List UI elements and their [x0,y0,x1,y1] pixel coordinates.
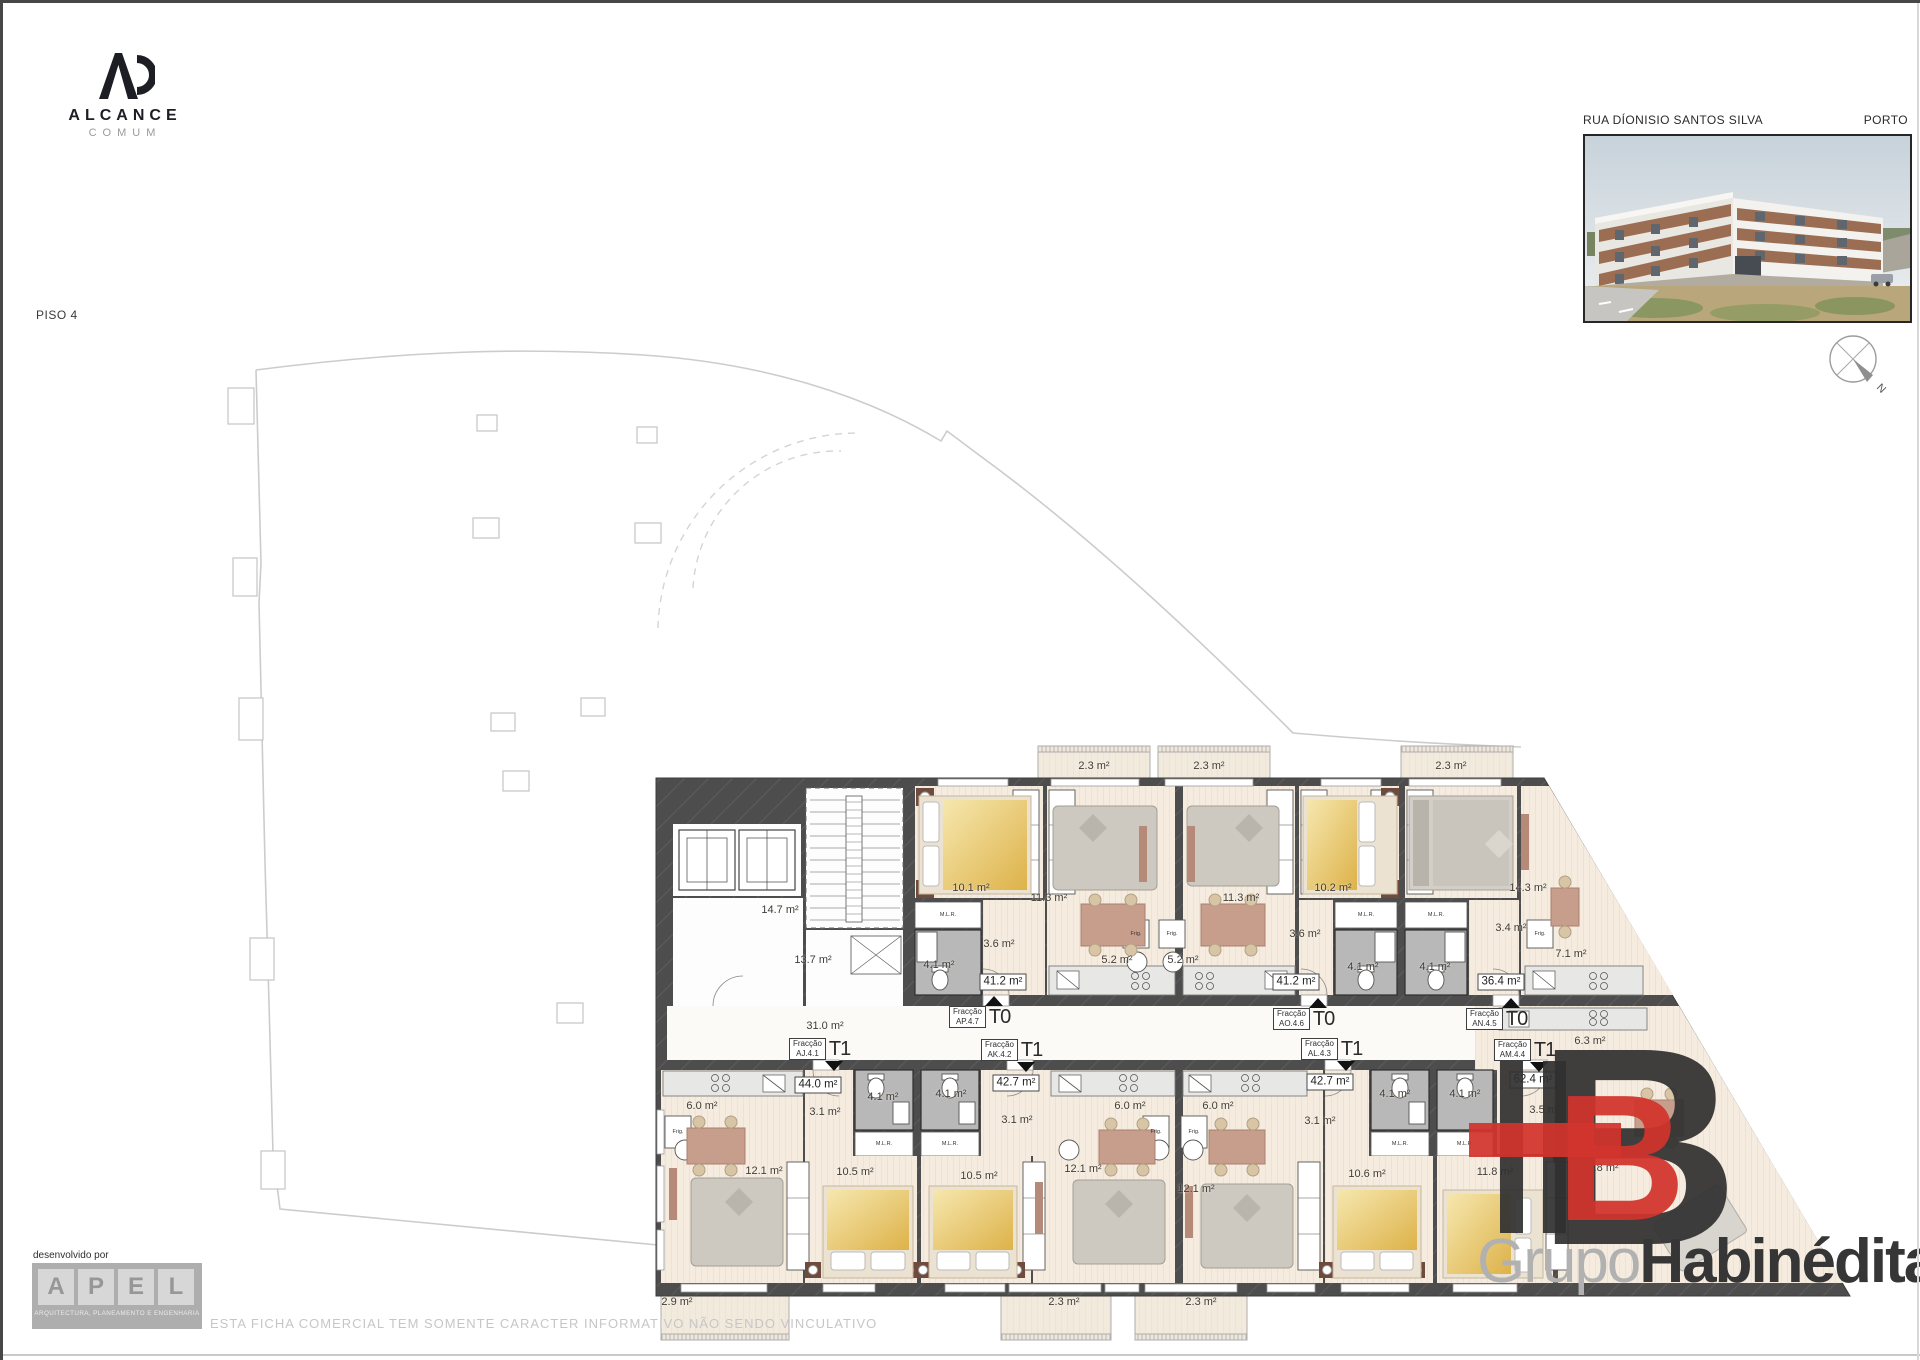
fraction-tag-AP.4.7: FracçãoAP.4.7T0 [949,1006,1010,1028]
entrance-arrow-icon [985,996,1003,1006]
fixture-label: M.L.R. [1457,1141,1473,1147]
area-label: 4.1 m² [923,959,954,971]
fraction-type: T1 [1341,1038,1362,1060]
alcance-logo: ALCANCE COMUM [45,49,205,139]
area-label: 2.3 m² [1435,760,1466,772]
disclaimer-text: ESTA FICHA COMERCIAL TEM SOMENTE CARACTE… [210,1316,877,1331]
area-label: 6.0 m² [1202,1100,1233,1112]
area-label: 2.3 m² [1193,760,1224,772]
adel-caption: ARQUITECTURA, PLANEAMENTO E ENGENHARIA [32,1310,202,1317]
alcance-name: ALCANCE [45,107,205,125]
fraction-code: FracçãoAO.4.6 [1273,1008,1310,1030]
area-label: 10.2 m² [1314,882,1351,894]
adel-letter: A [38,1269,74,1305]
entrance-arrow-icon [1530,1062,1548,1072]
fixture-label: Frig. [1151,1129,1162,1135]
entrance-arrow-icon [1017,1062,1035,1072]
area-label: 25.8 m² [1581,1162,1618,1174]
fixture-label: Frig. [1131,931,1142,937]
fixture-label: Frig. [1189,1129,1200,1135]
area-label: 5.2 m² [1167,954,1198,966]
fixture-label: M.L.R. [942,1141,958,1147]
adel-letter-tiles: A P E L [32,1263,202,1305]
fixture-label: M.L.R. [1392,1141,1408,1147]
area-label: 4.1 m² [1379,1088,1410,1100]
developed-by-label: desenvolvido por [33,1250,109,1261]
area-label: 5.2 m² [1101,954,1132,966]
right-edge-line [1917,3,1919,1360]
area-label: 6.0 m² [1114,1100,1145,1112]
fraction-type: T0 [989,1006,1010,1028]
fraction-tag-AO.4.6: FracçãoAO.4.6T0 [1273,1008,1334,1030]
entrance-arrow-icon [1502,998,1520,1008]
fraction-tag-AM.4.4: FracçãoAM.4.4T1 [1494,1039,1555,1061]
area-label: 4.1 m² [1419,961,1450,973]
fixture-label: Frig. [673,1129,684,1135]
fixture-label: M.L.R. [940,912,956,918]
area-label: 10.1 m² [952,882,989,894]
area-label: 3.1 m² [1304,1115,1335,1127]
area-label: 3.1 m² [809,1106,840,1118]
area-label: 4.1 m² [1347,961,1378,973]
area-label: 4.1 m² [1449,1088,1480,1100]
area-label: 3.5 m² [1529,1104,1560,1116]
area-label: 2.3 m² [1185,1296,1216,1308]
area-label: 12.1 m² [1064,1163,1101,1175]
fraction-code: FracçãoAM.4.4 [1494,1039,1531,1061]
fixture-label: Frig. [1167,931,1178,937]
bottom-edge-line [3,1354,1920,1356]
area-label: 41.2 m² [980,974,1027,991]
area-label: 3.6 m² [1289,928,1320,940]
commercial-sheet: N [0,0,1920,1360]
area-label: 6.3 m² [1574,1035,1605,1047]
area-label: 14.3 m² [1509,882,1546,894]
floor-label: PISO 4 [36,308,78,322]
fraction-tag-AK.4.2: FracçãoAK.4.2T1 [981,1039,1042,1061]
fraction-tag-AN.4.5: FracçãoAN.4.5T0 [1466,1008,1527,1030]
area-label: 31.0 m² [806,1020,843,1032]
fraction-code: FracçãoAN.4.5 [1466,1008,1503,1030]
adel-letter: L [158,1269,194,1305]
building-photo [1583,134,1912,323]
entrance-arrow-icon [1309,998,1327,1008]
area-label: 12.1 m² [745,1165,782,1177]
area-label: 4.1 m² [867,1091,898,1103]
area-label: 13.7 m² [794,954,831,966]
area-label: 10.5 m² [960,1170,997,1182]
area-label: 3.4 m² [1495,922,1526,934]
fixture-label: M.L.R. [1358,912,1374,918]
area-label: 4.1 m² [935,1088,966,1100]
area-label: 7.1 m² [1555,948,1586,960]
fixture-label: Frig. [1535,931,1546,937]
fraction-tag-AL.4.3: FracçãoAL.4.3T1 [1301,1038,1362,1060]
alcance-monogram-icon [95,49,155,101]
city-label: PORTO [1864,113,1908,127]
fixture-label: M.L.R. [876,1141,892,1147]
fraction-code: FracçãoAL.4.3 [1301,1038,1338,1060]
area-label: 2.3 m² [1078,760,1109,772]
area-label: 3.6 m² [983,938,1014,950]
fixture-label: M.L.R. [1428,912,1444,918]
area-label: 41.2 m² [1273,974,1320,991]
area-label: 11.3 m² [1031,892,1067,904]
area-label: 3.1 m² [1001,1114,1032,1126]
area-label: 11.8 m² [1477,1166,1513,1178]
area-label: 11.3 m² [1223,892,1259,904]
street-label: RUA DÍONISIO SANTOS SILVA [1583,113,1763,127]
fraction-type: T0 [1313,1008,1334,1030]
area-label: 36.4 m² [1478,974,1525,991]
fraction-type: T1 [829,1038,850,1060]
fraction-tag-AJ.4.1: FracçãoAJ.4.1T1 [789,1038,850,1060]
fraction-type: T1 [1021,1039,1042,1061]
area-label: 44.0 m² [795,1077,842,1094]
alcance-subtitle: COMUM [45,127,205,139]
area-label: 2.3 m² [1048,1296,1079,1308]
area-label: 6.0 m² [686,1100,717,1112]
fraction-type: T0 [1506,1008,1527,1030]
fraction-type: T1 [1534,1039,1555,1061]
address-row: RUA DÍONISIO SANTOS SILVA PORTO [1583,113,1908,127]
adel-letter: P [78,1269,114,1305]
area-label: 42.7 m² [993,1075,1040,1092]
area-label: 42.7 m² [1307,1074,1354,1091]
fraction-code: FracçãoAJ.4.1 [789,1038,826,1060]
adel-letter: E [118,1269,154,1305]
entrance-arrow-icon [825,1061,843,1071]
fraction-code: FracçãoAP.4.7 [949,1006,986,1028]
area-label: 10.5 m² [836,1166,873,1178]
area-label: 14.7 m² [761,904,798,916]
area-label: 62.4 m² [1510,1072,1557,1089]
area-label: 12.1 m² [1177,1183,1214,1195]
area-label: 2.9 m² [661,1296,692,1308]
adel-logo: A P E L ARQUITECTURA, PLANEAMENTO E ENGE… [32,1263,202,1329]
fraction-code: FracçãoAK.4.2 [981,1039,1018,1061]
entrance-arrow-icon [1337,1061,1355,1071]
area-label: 10.6 m² [1348,1168,1385,1180]
